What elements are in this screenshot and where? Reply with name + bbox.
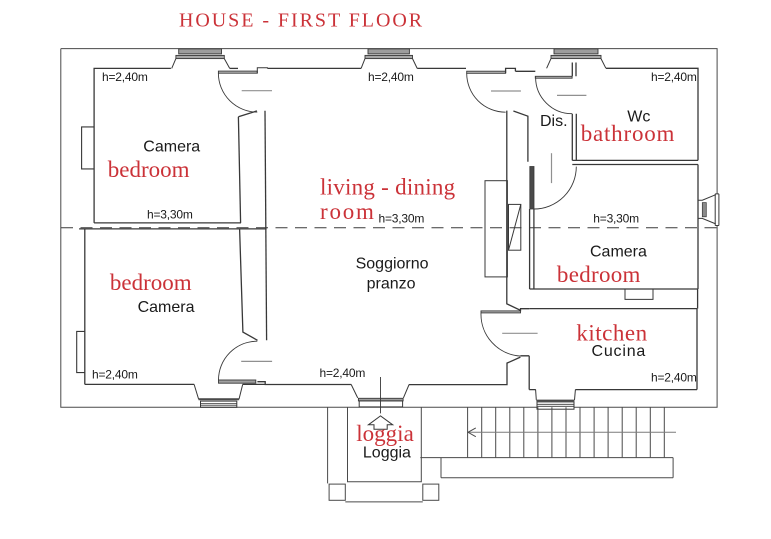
- svg-text:h=2,40m: h=2,40m: [320, 366, 366, 380]
- svg-text:h=3,30m: h=3,30m: [379, 211, 425, 225]
- svg-text:Camera: Camera: [143, 139, 200, 156]
- svg-text:h=3,30m: h=3,30m: [147, 208, 193, 222]
- svg-text:Camera: Camera: [138, 299, 195, 316]
- svg-text:Cucina: Cucina: [592, 343, 647, 360]
- svg-text:h=2,40m: h=2,40m: [368, 70, 414, 84]
- svg-text:room: room: [320, 199, 376, 224]
- svg-text:bathroom: bathroom: [581, 121, 676, 146]
- svg-text:h=2,40m: h=2,40m: [102, 70, 148, 84]
- svg-text:bedroom: bedroom: [108, 157, 190, 182]
- svg-text:Loggia: Loggia: [363, 445, 411, 462]
- svg-text:living - dining: living - dining: [320, 175, 456, 200]
- svg-text:h=2,40m: h=2,40m: [651, 371, 697, 385]
- svg-text:bedroom: bedroom: [557, 262, 641, 287]
- svg-text:Camera: Camera: [590, 243, 647, 260]
- svg-text:Soggiorno: Soggiorno: [356, 256, 429, 273]
- svg-text:HOUSE - FIRST FLOOR: HOUSE - FIRST FLOOR: [179, 9, 424, 31]
- svg-text:bedroom: bedroom: [110, 270, 192, 295]
- svg-text:h=3,30m: h=3,30m: [593, 212, 639, 226]
- svg-text:pranzo: pranzo: [367, 275, 416, 292]
- svg-text:loggia: loggia: [356, 421, 414, 446]
- svg-text:h=2,40m: h=2,40m: [651, 70, 697, 84]
- svg-text:Dis.: Dis.: [540, 113, 568, 130]
- svg-text:h=2,40m: h=2,40m: [92, 368, 138, 382]
